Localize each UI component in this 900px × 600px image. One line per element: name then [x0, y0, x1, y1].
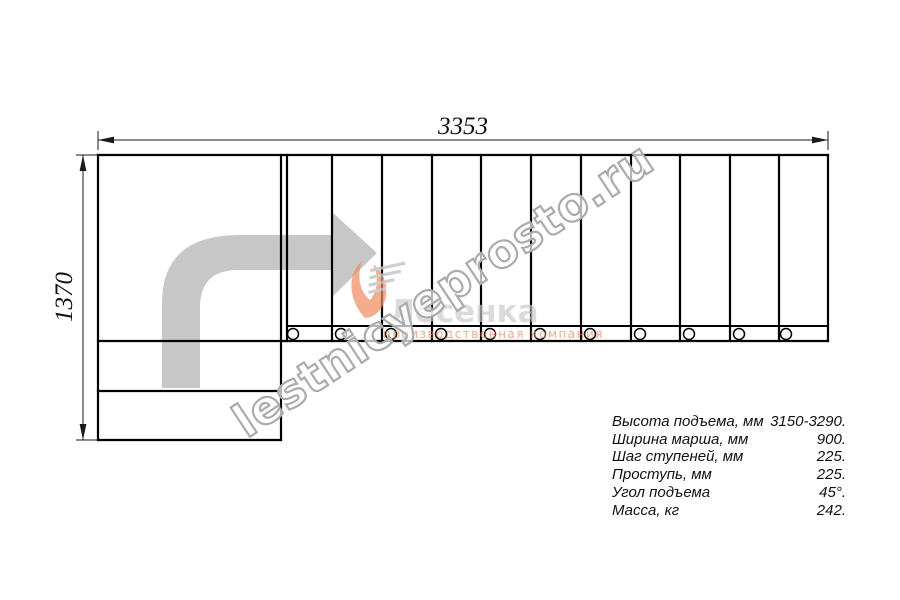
spec-row: Шаг ступеней, мм 225. [612, 448, 846, 466]
dim-arrow-left [98, 137, 114, 144]
spec-row: Высота подъема, мм 3150-3290. [612, 413, 846, 431]
baluster-circle [781, 329, 792, 340]
spec-label: Высота подъема, мм [612, 413, 764, 431]
dim-arrow-right [812, 137, 828, 144]
spec-value: 45°. [819, 484, 846, 502]
spec-label: Масса, кг [612, 502, 679, 520]
spec-label: Шаг ступеней, мм [612, 448, 743, 466]
spec-label: Проступь, мм [612, 466, 712, 484]
dim-arrow-up [80, 155, 87, 171]
spec-value: 225. [817, 448, 846, 466]
dimension-width: 3353 [98, 113, 828, 150]
spec-table: Высота подъема, мм 3150-3290. Ширина мар… [612, 413, 846, 519]
spec-value: 225. [817, 466, 846, 484]
spec-value: 3150-3290. [770, 413, 846, 431]
spec-label: Ширина марша, мм [612, 431, 748, 449]
baluster-circle [288, 329, 299, 340]
spec-row: Угол подъема 45°. [612, 484, 846, 502]
spec-row: Масса, кг 242. [612, 502, 846, 520]
baluster-circle [635, 329, 646, 340]
spec-row: Ширина марша, мм 900. [612, 431, 846, 449]
dim-arrow-down [80, 424, 87, 440]
baluster-circle [734, 329, 745, 340]
dimension-height-label: 1370 [51, 272, 78, 323]
dimension-height: 1370 [51, 155, 98, 440]
spec-label: Угол подъема [612, 484, 710, 502]
dimension-width-label: 3353 [437, 113, 488, 140]
watermark-text: lestnicyeprosto.ru [223, 131, 663, 448]
baluster-circle [684, 329, 695, 340]
stair-plan-page: 3353 1370 Лесенка производственная компа… [0, 0, 900, 600]
spec-value: 242. [817, 502, 846, 520]
spec-row: Проступь, мм 225. [612, 466, 846, 484]
spec-value: 900. [817, 431, 846, 449]
